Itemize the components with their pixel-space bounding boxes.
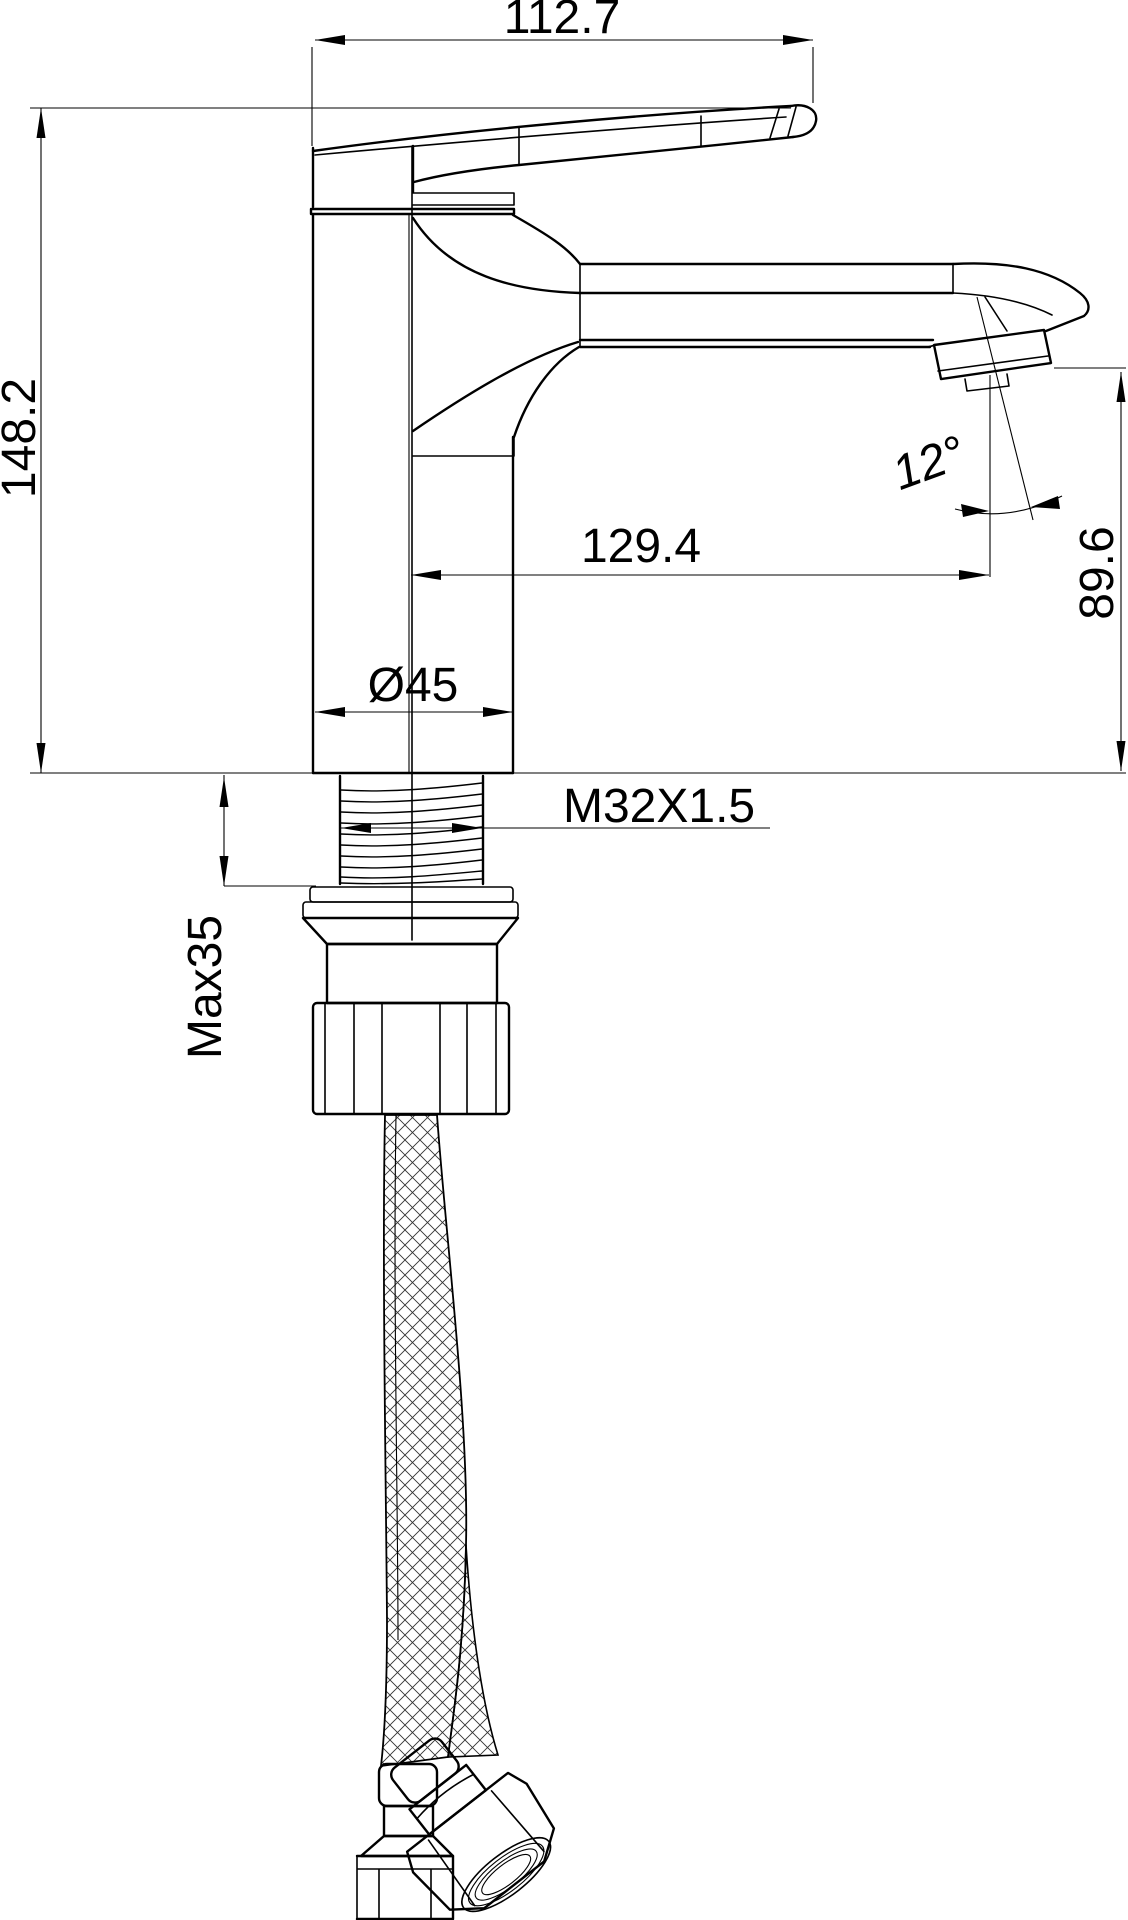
faucet-handle-lever <box>313 105 816 182</box>
dim-89-arrow-bottom <box>1117 741 1126 771</box>
spout-head-inner-line <box>953 293 1052 315</box>
spout-head-slant-seam <box>985 297 1007 331</box>
cartridge-collar <box>413 193 514 205</box>
aerator-inner-line <box>938 356 1048 371</box>
lever-tip-seams <box>770 107 796 138</box>
spout-underside-bridge <box>928 345 934 347</box>
aerator-block <box>934 330 1051 379</box>
dim-spout-angle-label: 12° <box>886 426 972 501</box>
body-tangent-lines <box>413 437 514 456</box>
dim-148-arrow-bottom <box>37 743 46 773</box>
dim-112-arrow-left <box>315 35 345 45</box>
left-hex-facets <box>357 1856 453 1919</box>
dim-m32-arrow-right <box>452 823 482 833</box>
aerator-notch <box>965 374 1009 391</box>
body-upper-right-fillet <box>513 215 580 264</box>
dim-129-arrow-right <box>959 570 989 580</box>
dim-112-lines <box>312 40 813 146</box>
dim-112-arrow-right <box>783 35 813 45</box>
dim-max35-arrow-bottom <box>220 856 229 886</box>
nut-opening-outer <box>451 1826 561 1920</box>
hose-braided-body <box>381 1115 466 1766</box>
body-lower-fillet-outer <box>413 342 578 431</box>
faucet-outline <box>303 105 1089 1920</box>
dim-outlet-reach-label: 129.4 <box>581 520 701 573</box>
knurl-facet-lines <box>325 1003 496 1114</box>
knurled-nut <box>313 1003 509 1114</box>
mounting-cone <box>303 918 518 944</box>
dim-129-arrow-left <box>411 570 441 580</box>
dimension-max-thickness: Max35 <box>179 775 316 1059</box>
mounting-nut-body <box>327 944 497 1003</box>
washer-plate-lower <box>303 902 518 918</box>
dim-top-width-label: 112.7 <box>504 0 621 44</box>
angle-slant-line <box>977 297 1033 520</box>
dimension-outlet-height: 89.6 <box>1054 368 1126 771</box>
body-lower-fillet-inner <box>514 347 579 437</box>
mounting-hardware <box>303 887 518 1114</box>
angle-arrow-right <box>1031 496 1060 509</box>
faucet-spout-head <box>928 263 1089 391</box>
dim-148-arrow-top <box>37 108 46 138</box>
dim-45-arrow-right <box>483 707 513 717</box>
supply-hose <box>381 1115 498 1766</box>
dim-body-diameter-label: Ø45 <box>368 659 459 712</box>
right-collar-seam <box>415 1772 474 1819</box>
dimension-thread-spec: M32X1.5 <box>341 780 770 833</box>
spout-head-outline <box>953 263 1089 331</box>
faucet-spout-arm <box>580 264 953 347</box>
dim-outlet-height-label: 89.6 <box>1071 526 1124 619</box>
faucet-dimension-drawing: 112.7 148.2 12° 129.4 89.6 Ø45 <box>0 0 1128 1920</box>
dimension-outlet-reach: 129.4 <box>411 520 989 580</box>
angle-arrow-left <box>961 504 989 517</box>
lever-inner-line <box>315 117 786 155</box>
left-hex-nut <box>357 1856 453 1919</box>
lever-bottom-edge <box>414 137 793 182</box>
dim-max35-lines <box>224 775 316 886</box>
dimension-top-width: 112.7 <box>312 0 813 146</box>
technical-drawing-canvas: 112.7 148.2 12° 129.4 89.6 Ø45 <box>0 0 1128 1920</box>
dim-max35-arrow-top <box>220 777 229 807</box>
body-upper-fillet <box>413 218 580 293</box>
dim-max-thickness-label: Max35 <box>179 915 232 1059</box>
dim-overall-height-label: 148.2 <box>0 378 46 498</box>
dimension-body-diameter: Ø45 <box>315 659 513 717</box>
dim-thread-spec-label: M32X1.5 <box>563 780 755 833</box>
dim-m32-arrow-left <box>341 823 371 833</box>
dim-89-arrow-top <box>1117 372 1126 402</box>
dim-45-arrow-left <box>315 707 345 717</box>
right-hex-nut <box>401 1768 571 1920</box>
faucet-body <box>313 146 580 940</box>
